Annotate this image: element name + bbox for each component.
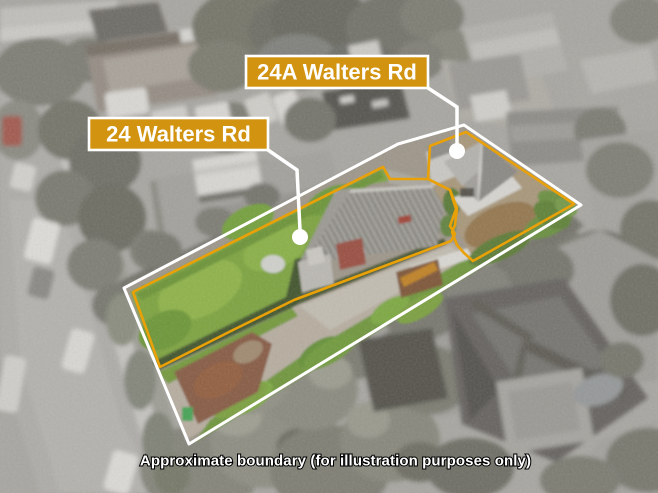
svg-text:Approximate boundary (for illu: Approximate boundary (for illustration p… — [140, 453, 531, 470]
svg-text:24 Walters Rd: 24 Walters Rd — [106, 122, 251, 147]
svg-text:24A Walters Rd: 24A Walters Rd — [257, 60, 417, 85]
